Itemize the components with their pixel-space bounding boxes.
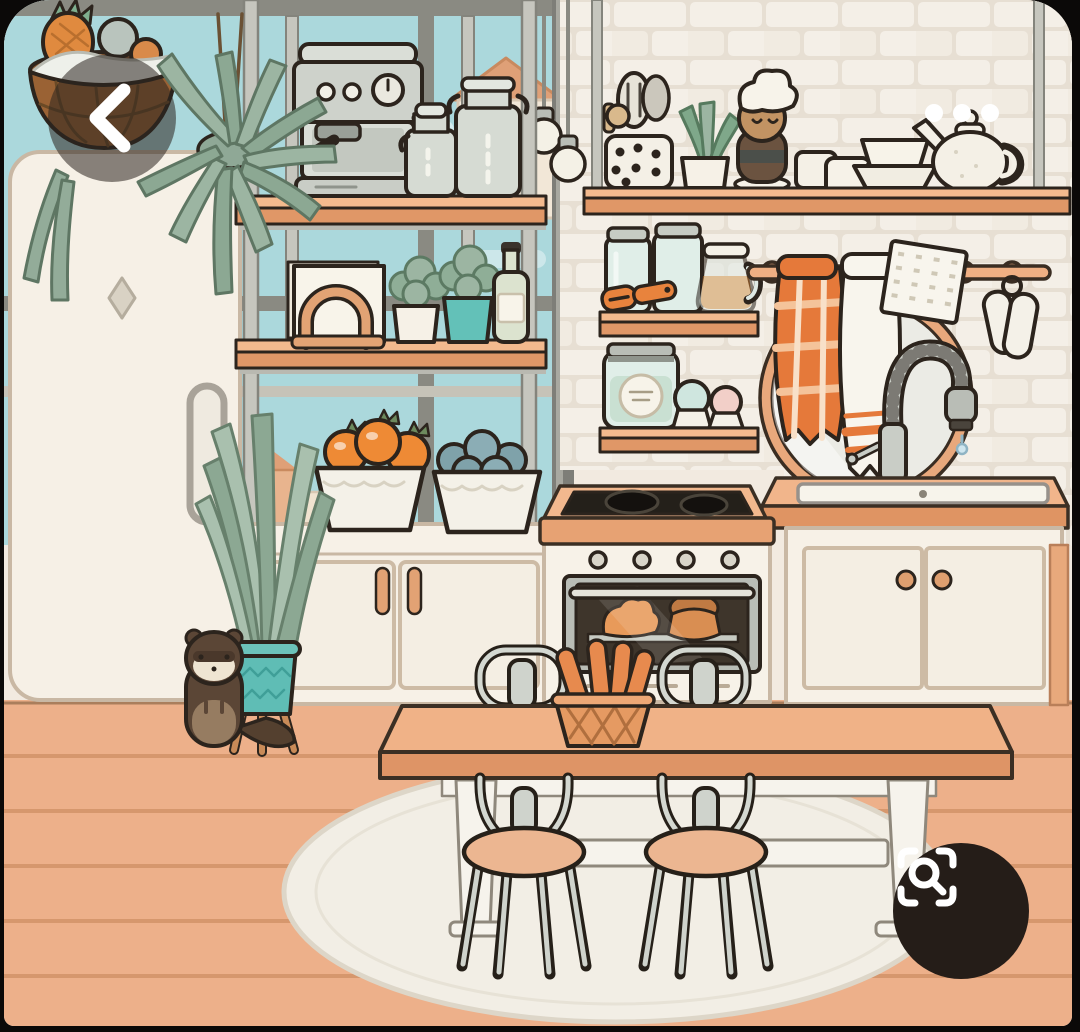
chevron-left-icon	[48, 54, 176, 182]
ellipsis-dot	[981, 104, 999, 122]
area-rug	[284, 762, 948, 1022]
oven-knob	[590, 552, 606, 568]
tabletop	[380, 706, 1012, 752]
salt-shaker	[673, 381, 711, 428]
oven-knob	[722, 552, 738, 568]
wall-corner-trim	[1050, 545, 1068, 705]
chair-seat	[464, 828, 584, 876]
cabinet-knob	[933, 571, 951, 589]
camera-search-icon	[893, 843, 961, 911]
oven-knob	[678, 552, 694, 568]
ellipsis-dot	[953, 104, 971, 122]
screen	[0, 0, 1080, 1032]
bowl-stack	[854, 140, 936, 188]
oven-knob	[634, 552, 650, 568]
kitchen-image	[4, 0, 1072, 1026]
back-button[interactable]	[48, 54, 176, 182]
sink-cabinet	[786, 528, 1062, 704]
ellipsis-dot	[925, 104, 943, 122]
more-options-button[interactable]	[925, 104, 999, 122]
chair-seat	[646, 828, 766, 876]
lens-search-button[interactable]	[893, 843, 1029, 979]
napkin-holder	[288, 262, 384, 348]
bread-basket	[552, 639, 655, 746]
cabinet-knob	[897, 571, 915, 589]
cabinet-handle	[408, 568, 421, 614]
jar-label	[620, 375, 662, 417]
oven-handle	[570, 588, 754, 598]
cooktop	[540, 486, 774, 544]
kitchen-sink	[762, 478, 1068, 528]
water-drop	[957, 444, 967, 454]
waffle-cloth	[881, 240, 967, 323]
cabinet-handle	[376, 568, 389, 614]
pepper-shaker	[709, 387, 743, 428]
towel-orange	[775, 256, 845, 444]
